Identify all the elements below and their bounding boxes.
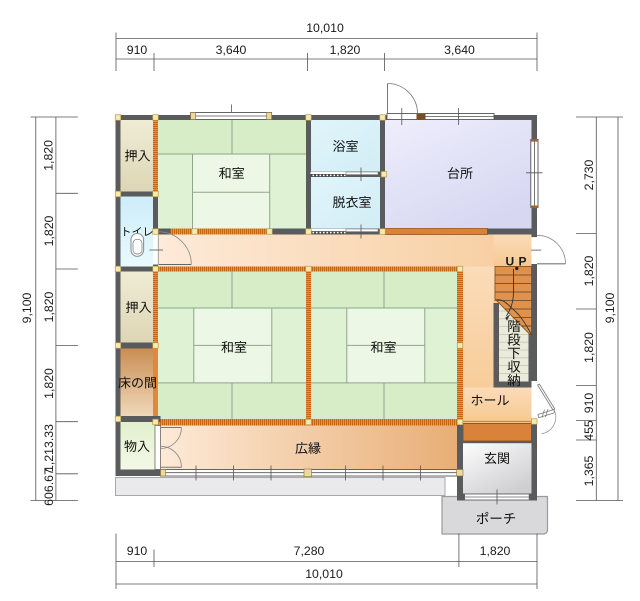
- svg-text:1,820: 1,820: [330, 43, 361, 57]
- svg-text:7,280: 7,280: [294, 544, 325, 558]
- svg-text:3,640: 3,640: [216, 43, 247, 57]
- svg-text:1,820: 1,820: [582, 255, 596, 286]
- svg-text:1,820: 1,820: [42, 291, 56, 322]
- svg-text:910: 910: [127, 43, 148, 57]
- svg-text:910: 910: [127, 544, 148, 558]
- svg-text:10,010: 10,010: [306, 21, 344, 35]
- svg-text:1,213.33: 1,213.33: [42, 424, 56, 472]
- svg-text:455: 455: [582, 420, 596, 441]
- svg-text:1,820: 1,820: [582, 332, 596, 363]
- svg-text:3,640: 3,640: [444, 43, 475, 57]
- svg-text:1,820: 1,820: [42, 215, 56, 246]
- svg-text:1,365: 1,365: [582, 455, 596, 486]
- svg-text:606.67: 606.67: [42, 468, 56, 506]
- svg-text:U P: U P: [506, 255, 528, 269]
- svg-text:10,010: 10,010: [305, 567, 343, 581]
- svg-text:2,730: 2,730: [582, 159, 596, 190]
- svg-text:910: 910: [582, 393, 596, 414]
- svg-text:1,820: 1,820: [42, 368, 56, 399]
- svg-text:9,100: 9,100: [20, 292, 34, 323]
- svg-text:1,820: 1,820: [42, 140, 56, 171]
- svg-text:9,100: 9,100: [603, 292, 617, 323]
- svg-text:1,820: 1,820: [480, 544, 511, 558]
